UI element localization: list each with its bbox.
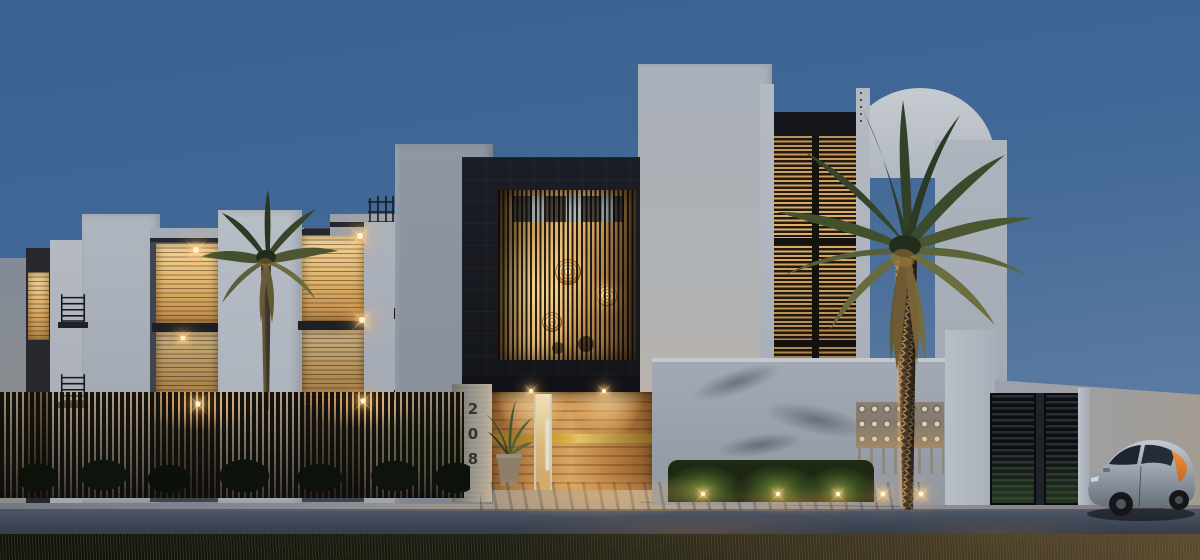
slat-edge-shade <box>498 190 636 360</box>
entrance-plant <box>484 394 534 490</box>
left-hedge-silhouette <box>0 450 470 500</box>
balcony-slab <box>58 322 88 328</box>
door-handle <box>546 420 549 470</box>
suv-car <box>1083 426 1200 526</box>
roof-terrace-railing <box>366 190 396 224</box>
large-palm-tree <box>755 60 1055 520</box>
entrance-glass-door <box>534 394 552 490</box>
narrow-lit-window <box>28 272 49 340</box>
dusk-apartment-building-rendering: 208 <box>0 0 1200 560</box>
palm-fronds <box>200 190 338 323</box>
foreground-grass <box>0 534 1200 560</box>
small-palm-tree <box>198 185 348 415</box>
slat-screen-window <box>498 190 636 360</box>
balcony-railing <box>60 290 86 326</box>
